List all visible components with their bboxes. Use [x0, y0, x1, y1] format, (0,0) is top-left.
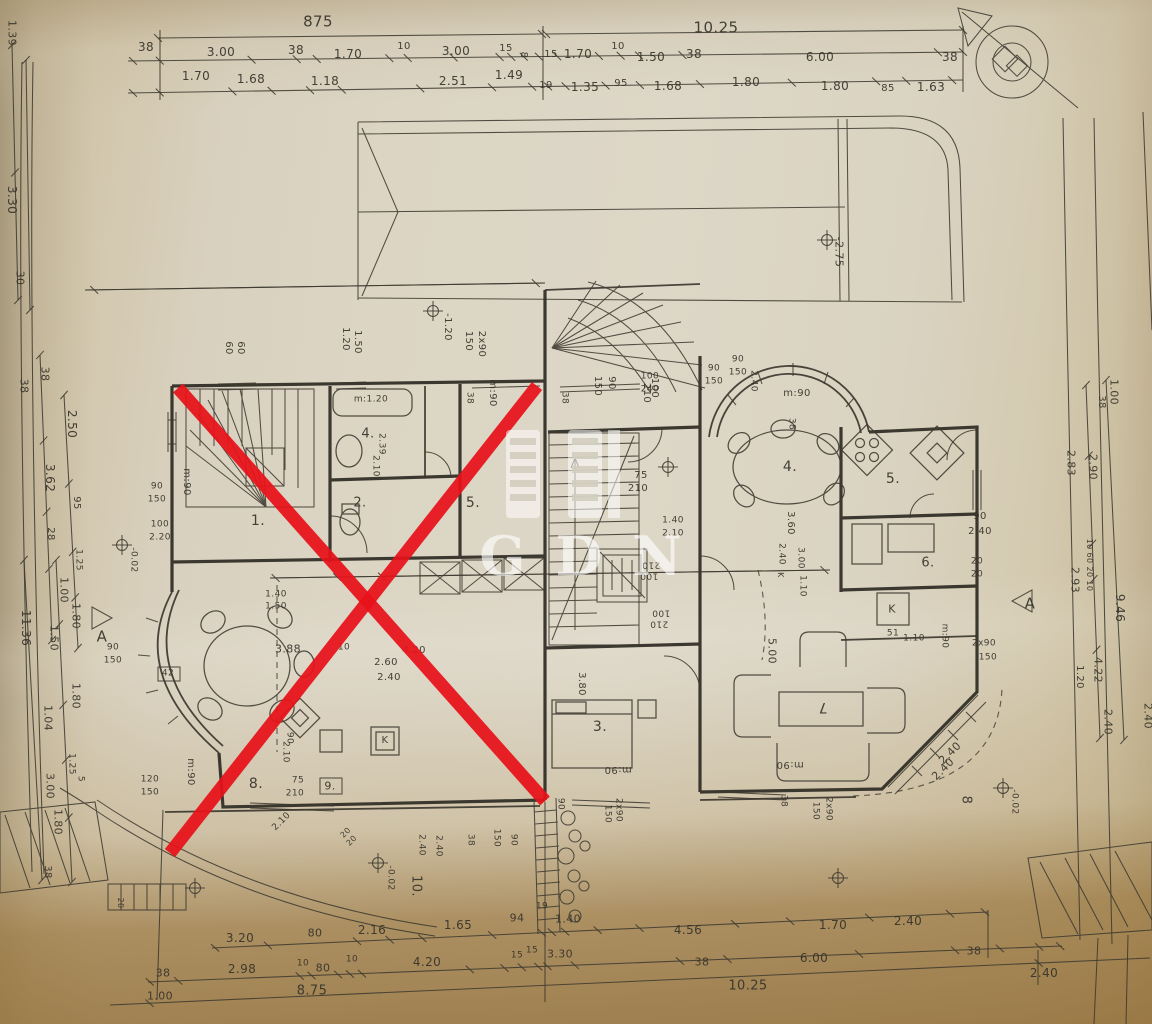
red-cross-stroke [170, 386, 537, 853]
red-cross-mark [0, 0, 1152, 1024]
floor-plan-photo: 87510.25383.00381.70103.00158151.70101.5… [0, 0, 1152, 1024]
